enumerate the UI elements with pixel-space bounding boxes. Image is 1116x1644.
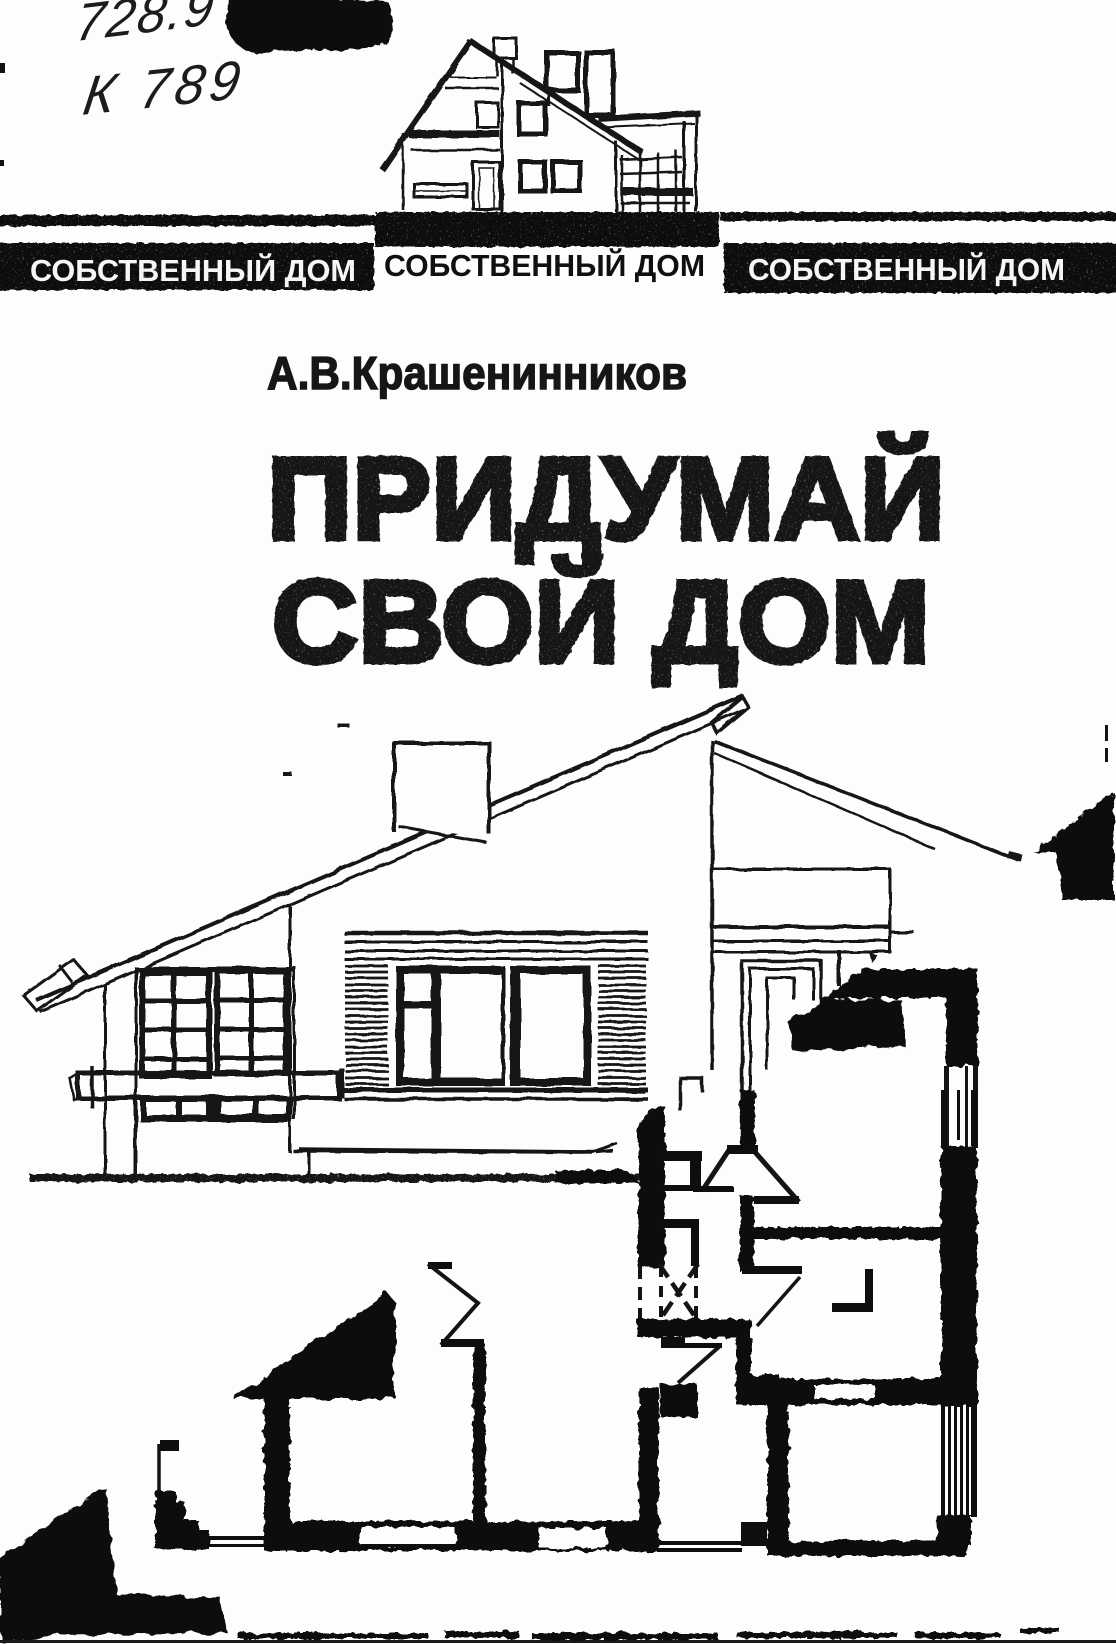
svg-text:СОБСТВЕННЫЙ ДОМ: СОБСТВЕННЫЙ ДОМ — [30, 252, 356, 288]
svg-text:ПРИДУМАЙ: ПРИДУМАЙ — [267, 433, 945, 564]
svg-text:А.В.Крашенинников: А.В.Крашенинников — [267, 347, 687, 399]
svg-text:СВОЙ ДОМ: СВОЙ ДОМ — [272, 556, 930, 687]
svg-text:СОБСТВЕННЫЙ ДОМ: СОБСТВЕННЫЙ ДОМ — [384, 247, 705, 283]
svg-text:СОБСТВЕННЫЙ ДОМ: СОБСТВЕННЫЙ ДОМ — [748, 251, 1065, 287]
